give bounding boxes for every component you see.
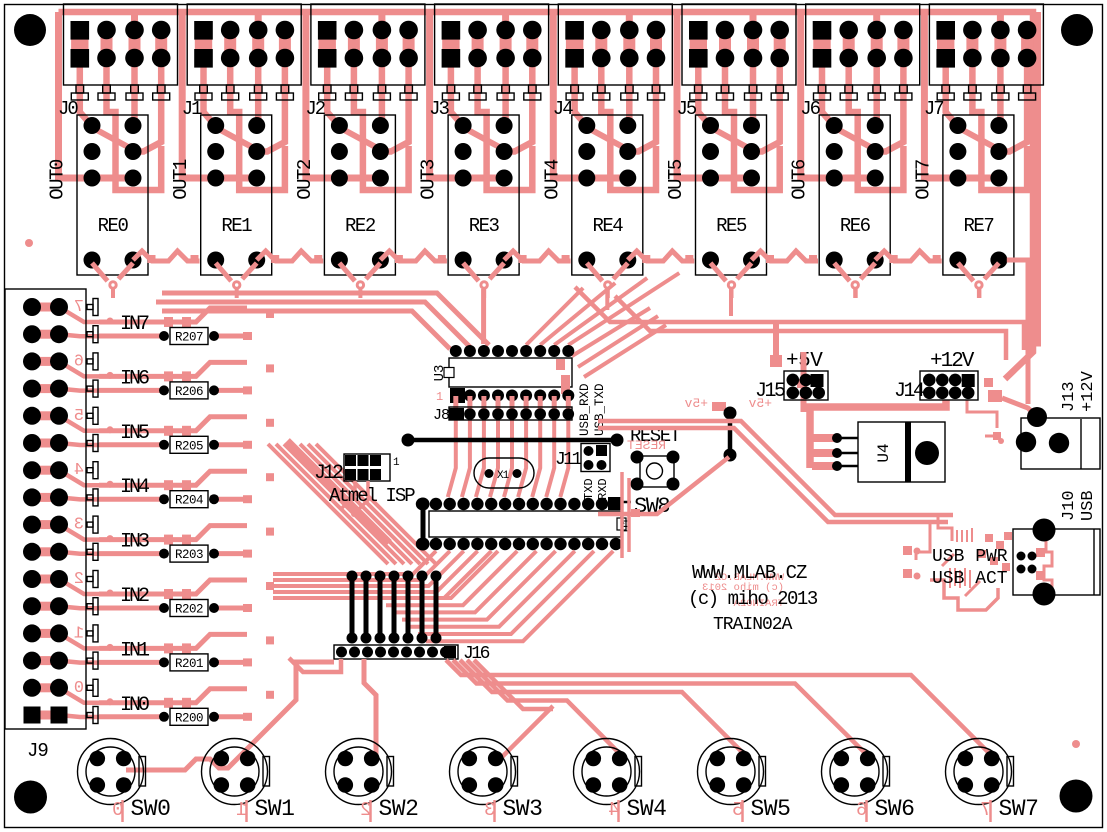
svg-text:IN0: IN0	[120, 694, 149, 717]
svg-text:IN2: IN2	[120, 585, 149, 608]
svg-text:RE7: RE7	[964, 215, 994, 237]
svg-text:SW7: SW7	[999, 796, 1039, 822]
svg-text:RE3: RE3	[469, 215, 500, 237]
svg-text:WWW.MLAB.CZ: WWW.MLAB.CZ	[692, 562, 807, 584]
svg-text:SW0: SW0	[131, 796, 171, 822]
svg-text:R202: R202	[175, 603, 203, 617]
svg-text:3: 3	[484, 799, 495, 821]
svg-text:J14: J14	[894, 380, 924, 403]
svg-text:RE1: RE1	[221, 215, 252, 237]
svg-text:OUT0: OUT0	[47, 159, 69, 200]
svg-text:7: 7	[980, 799, 991, 821]
svg-text:1: 1	[436, 390, 443, 404]
svg-text:SW6: SW6	[875, 796, 915, 822]
svg-text:OUT1: OUT1	[170, 159, 192, 200]
svg-text:0: 0	[112, 799, 123, 821]
svg-text:J3: J3	[429, 98, 449, 120]
svg-text:USB PWR: USB PWR	[932, 547, 1008, 567]
svg-text:RE2: RE2	[345, 215, 376, 237]
svg-text:J10: J10	[1060, 490, 1079, 521]
svg-text:+12V: +12V	[1079, 370, 1098, 412]
svg-text:3: 3	[74, 516, 84, 535]
svg-text:+12V: +12V	[930, 350, 975, 373]
svg-text:OUT6: OUT6	[789, 159, 811, 200]
svg-text:2: 2	[360, 799, 371, 821]
svg-text:SW3: SW3	[503, 796, 543, 822]
svg-text:RESET: RESET	[627, 438, 666, 453]
svg-text:R204: R204	[175, 494, 203, 508]
svg-text:5: 5	[74, 407, 84, 426]
svg-text:USB: USB	[1079, 490, 1098, 521]
svg-text:R205: R205	[175, 439, 203, 453]
svg-text:R207: R207	[175, 331, 203, 345]
svg-text:J13: J13	[1060, 381, 1079, 412]
svg-text:+5v: +5v	[748, 396, 772, 411]
svg-text:USB_RXD: USB_RXD	[578, 383, 592, 436]
svg-text:R203: R203	[175, 548, 203, 562]
svg-text:4: 4	[608, 799, 619, 821]
svg-text:R200: R200	[175, 711, 203, 725]
svg-text:Atmel ISP: Atmel ISP	[329, 485, 415, 507]
svg-text:SW4: SW4	[627, 796, 667, 822]
svg-text:U3: U3	[432, 365, 448, 382]
svg-text:OUT4: OUT4	[541, 159, 563, 200]
svg-text:RXD: RXD	[596, 478, 610, 500]
svg-text:J7: J7	[924, 98, 943, 120]
svg-text:SW1: SW1	[255, 796, 295, 822]
svg-text:IN5: IN5	[120, 422, 149, 445]
svg-text:J6: J6	[800, 98, 820, 120]
svg-text:7: 7	[74, 298, 84, 317]
svg-text:IN3: IN3	[120, 531, 149, 554]
svg-text:J4: J4	[553, 98, 573, 120]
svg-text:R201: R201	[175, 657, 203, 671]
svg-text:J11: J11	[555, 450, 582, 470]
svg-text:J5: J5	[677, 98, 697, 120]
svg-text:J0: J0	[58, 98, 78, 120]
svg-text:1: 1	[393, 457, 400, 469]
svg-text:6: 6	[74, 352, 84, 371]
svg-text:RE5: RE5	[716, 215, 747, 237]
svg-text:TXD: TXD	[582, 478, 596, 500]
svg-text:+5v: +5v	[684, 396, 708, 411]
svg-text:1: 1	[74, 624, 84, 643]
svg-text:SW5: SW5	[751, 796, 791, 822]
svg-text:1: 1	[236, 799, 247, 821]
svg-text:USB ACT: USB ACT	[932, 569, 1008, 589]
svg-text:OUT5: OUT5	[665, 159, 687, 200]
svg-text:RE4: RE4	[592, 215, 623, 237]
svg-text:R206: R206	[175, 385, 203, 399]
svg-text:OUT3: OUT3	[418, 159, 440, 200]
svg-text:X1: X1	[497, 470, 510, 482]
svg-text:RE6: RE6	[840, 215, 871, 237]
svg-text:IN1: IN1	[120, 639, 150, 662]
svg-text:IN6: IN6	[120, 367, 149, 390]
svg-text:6: 6	[856, 799, 867, 821]
svg-text:U4: U4	[875, 443, 893, 462]
svg-text:J9: J9	[27, 740, 48, 762]
svg-text:IN4: IN4	[120, 476, 149, 499]
svg-text:2: 2	[74, 570, 84, 589]
svg-text:J8: J8	[433, 407, 450, 424]
svg-text:J12: J12	[314, 462, 343, 485]
svg-text:J1: J1	[182, 98, 202, 120]
svg-text:OUT2: OUT2	[294, 159, 316, 200]
svg-text:4: 4	[74, 461, 84, 480]
svg-text:(c) miho 2013: (c) miho 2013	[688, 588, 818, 610]
svg-text:IN7: IN7	[120, 313, 149, 336]
svg-text:0: 0	[74, 679, 84, 698]
svg-text:SW2: SW2	[379, 796, 419, 822]
svg-text:5: 5	[732, 799, 743, 821]
svg-text:J2: J2	[305, 98, 325, 120]
svg-text:TRAIN02A: TRAIN02A	[713, 615, 793, 635]
svg-text:RE0: RE0	[98, 215, 129, 237]
svg-text:OUT7: OUT7	[912, 160, 934, 200]
